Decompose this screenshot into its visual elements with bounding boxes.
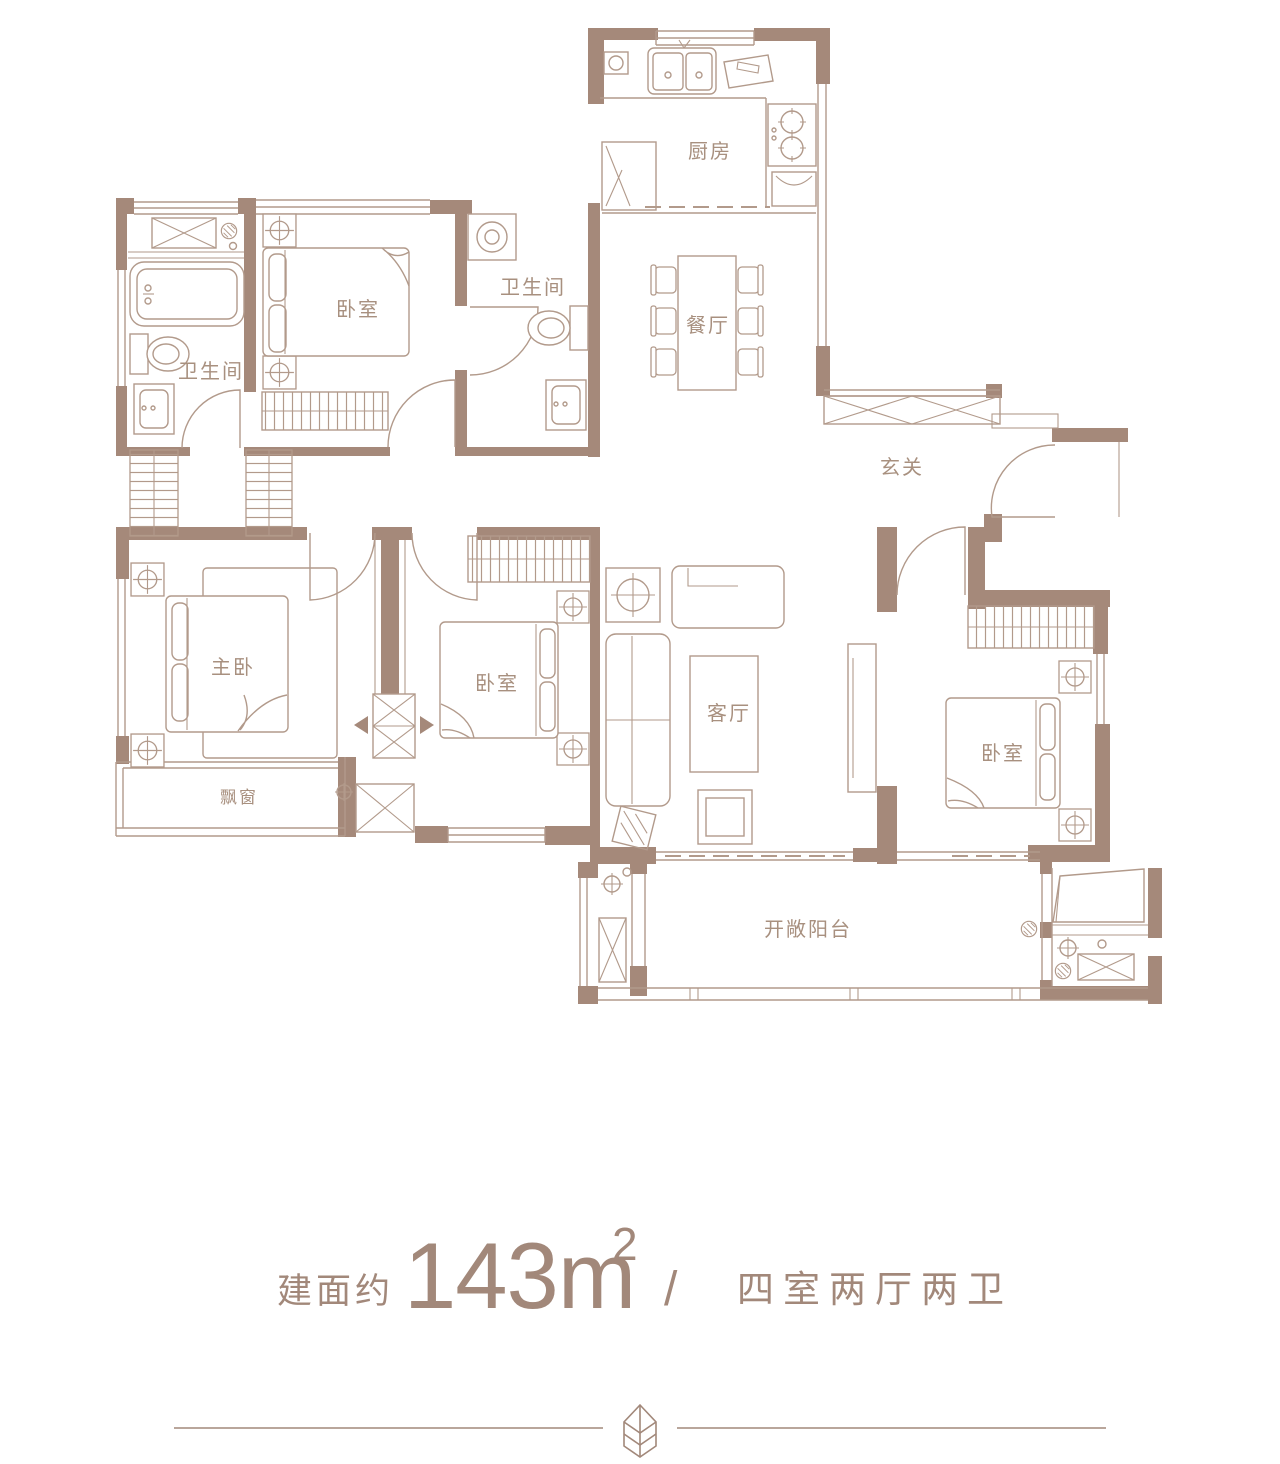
chair <box>651 265 676 295</box>
nightstand <box>263 356 296 389</box>
laundry-tub <box>1053 869 1144 922</box>
chair <box>738 265 763 295</box>
plant <box>1055 963 1070 978</box>
caption-layout: 四室两厅两卫 <box>737 1269 1013 1310</box>
bathroom-top-fixtures <box>468 214 588 430</box>
door-bedroom-top <box>388 380 455 447</box>
sideboard <box>672 566 784 628</box>
caption-area-prefix: 建面约 <box>277 1272 394 1311</box>
nightstand <box>1059 809 1091 841</box>
bathroom-left-fixtures <box>130 218 244 434</box>
door-bedroom-middle <box>412 533 477 600</box>
nightstand <box>263 214 296 247</box>
label-bedroom-top: 卧室 <box>336 298 380 321</box>
label-bathroom-top: 卫生间 <box>500 276 566 299</box>
door-entry <box>991 445 1055 517</box>
door-master-bedroom <box>310 533 375 600</box>
arrow-left-icon <box>354 716 368 734</box>
nightstand <box>131 734 164 767</box>
label-bedroom-middle: 卧室 <box>475 672 519 695</box>
label-balcony: 开敞阳台 <box>764 918 852 941</box>
bedroom-middle-furniture <box>440 536 590 765</box>
label-bedroom-right: 卧室 <box>981 742 1025 765</box>
floor-plan-page: 厨房 卫生间 卧室 卫生间 餐厅 玄关 主卧 卧室 客厅 飘窗 卧室 开敞阳台 … <box>0 0 1280 1464</box>
door-bathroom-top <box>470 307 538 375</box>
bedroom-right-furniture <box>946 606 1094 841</box>
plant <box>612 806 656 850</box>
label-bathroom-left: 卫生间 <box>178 360 244 383</box>
label-dining: 餐厅 <box>686 314 730 337</box>
chair <box>738 306 763 336</box>
nightstand <box>131 563 164 596</box>
bedroom-top-furniture <box>262 214 409 430</box>
nightstand <box>1059 661 1091 693</box>
label-kitchen: 厨房 <box>688 140 732 163</box>
toilet <box>570 306 588 350</box>
fridge-space <box>602 142 656 210</box>
label-master-bedroom: 主卧 <box>211 656 255 679</box>
hall-closets <box>130 450 292 536</box>
caption-area-superscript: 2 <box>612 1218 638 1270</box>
caption-separator: / <box>664 1263 678 1316</box>
chair <box>738 347 763 377</box>
toilet <box>130 334 148 374</box>
label-living: 客厅 <box>707 702 751 725</box>
nightstand <box>557 733 589 765</box>
caption-area-value: 143m <box>404 1223 635 1328</box>
chair <box>651 347 676 377</box>
washing-machine <box>468 214 516 260</box>
nightstand <box>557 591 589 623</box>
kitchen-fixtures <box>600 40 816 210</box>
label-foyer: 玄关 <box>880 456 924 479</box>
kitchen-cabinet <box>772 172 816 206</box>
label-bay-window: 飘窗 <box>220 788 258 807</box>
leaf-icon <box>624 1405 656 1457</box>
caption: 建面约 143m 2 / 四室两厅两卫 <box>277 1218 1013 1328</box>
door-bathroom-left <box>182 390 240 448</box>
footer-divider <box>174 1405 1106 1457</box>
arrow-right-icon <box>420 716 434 734</box>
floor-plan-image: 厨房 卫生间 卧室 卫生间 餐厅 玄关 主卧 卧室 客厅 飘窗 卧室 开敞阳台 … <box>0 0 1280 1464</box>
plant <box>1021 921 1036 936</box>
chair <box>651 306 676 336</box>
tv-cabinet <box>848 644 876 792</box>
door-bedroom-right <box>897 527 965 595</box>
